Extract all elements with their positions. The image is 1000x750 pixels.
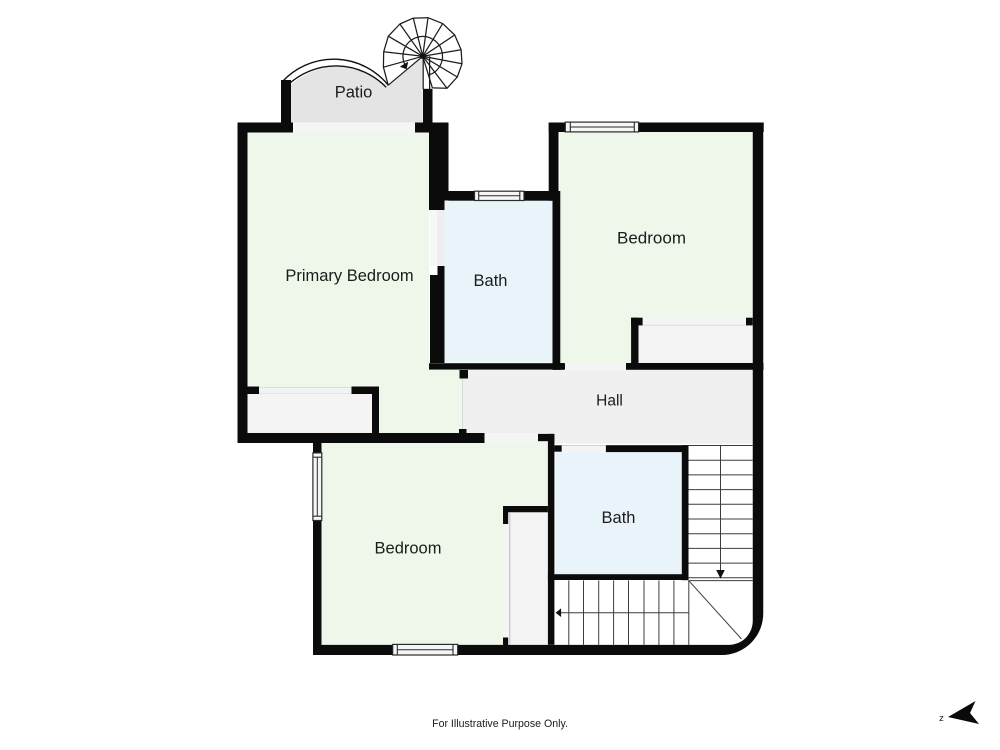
svg-text:z: z: [939, 713, 944, 724]
svg-text:Bedroom: Bedroom: [617, 229, 686, 248]
svg-text:Bedroom: Bedroom: [375, 540, 442, 558]
svg-text:Hall: Hall: [596, 393, 623, 410]
svg-text:Patio: Patio: [335, 84, 373, 102]
svg-text:Primary Bedroom: Primary Bedroom: [285, 267, 413, 285]
svg-text:Bath: Bath: [474, 272, 508, 290]
svg-text:For Illustrative Purpose Only.: For Illustrative Purpose Only.: [432, 718, 568, 730]
svg-text:Bath: Bath: [602, 509, 636, 527]
